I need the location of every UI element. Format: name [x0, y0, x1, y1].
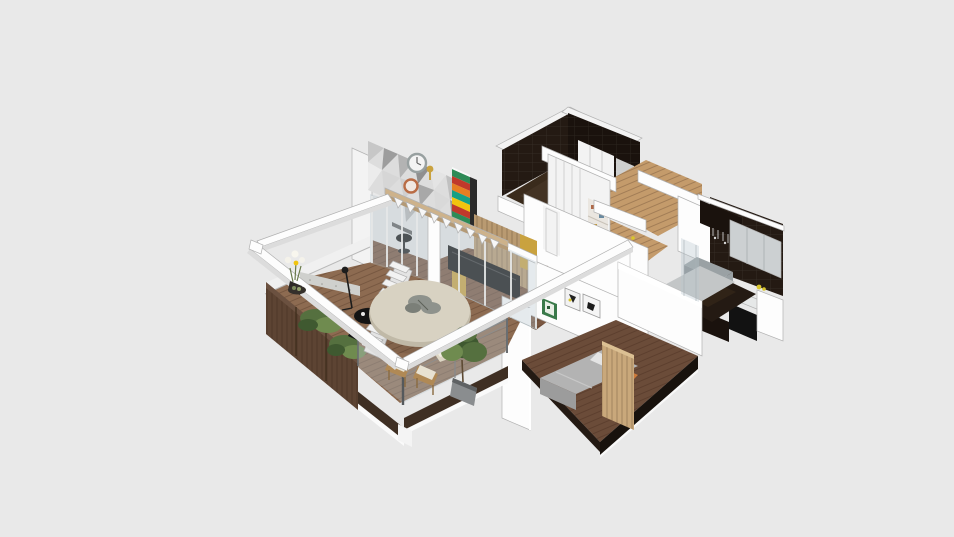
floorplan-render	[0, 0, 954, 537]
lemon	[762, 287, 766, 291]
succulent-bowl	[288, 286, 306, 295]
copper-ring-decor	[405, 180, 418, 193]
3d-viewport-canvas[interactable]	[0, 0, 954, 537]
lemon	[757, 285, 762, 290]
